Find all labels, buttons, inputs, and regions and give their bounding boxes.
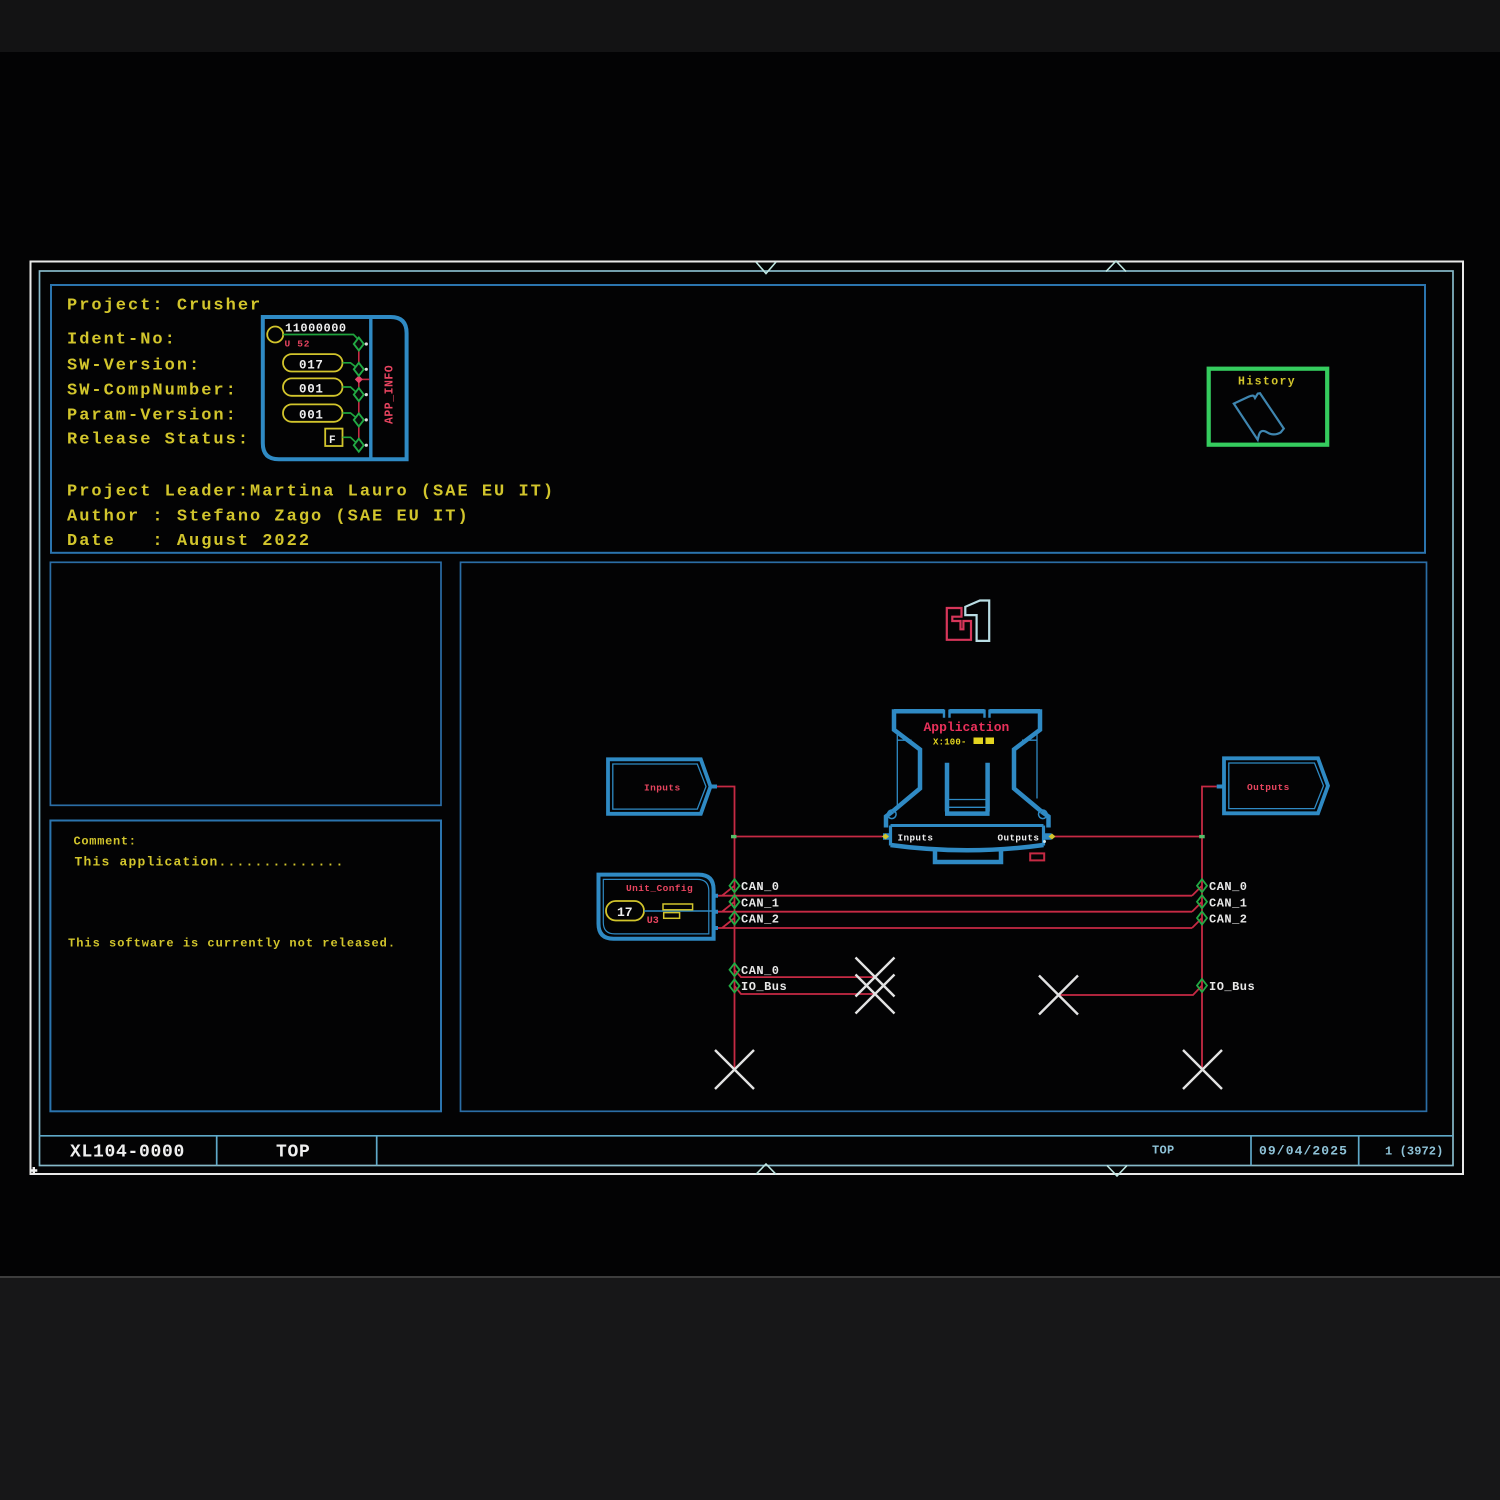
svg-text:001: 001 bbox=[299, 409, 324, 423]
svg-text:IO_Bus: IO_Bus bbox=[741, 980, 787, 994]
svg-text:Outputs: Outputs bbox=[1247, 782, 1290, 793]
svg-text:TOP: TOP bbox=[1152, 1144, 1175, 1158]
svg-text:09/04/2025: 09/04/2025 bbox=[1259, 1144, 1348, 1159]
svg-text:1 (3972): 1 (3972) bbox=[1385, 1145, 1443, 1159]
svg-text:XL104-0000: XL104-0000 bbox=[70, 1143, 185, 1163]
svg-text:11000000: 11000000 bbox=[285, 322, 347, 336]
svg-text:CAN_0: CAN_0 bbox=[741, 880, 780, 894]
svg-text:IO_Bus: IO_Bus bbox=[1209, 980, 1255, 994]
svg-text:This software is currently not: This software is currently not released. bbox=[68, 937, 396, 951]
svg-text:Release Status:: Release Status: bbox=[67, 431, 250, 450]
svg-text:F: F bbox=[329, 435, 336, 447]
svg-text:SW-Version:: SW-Version: bbox=[67, 356, 201, 375]
svg-text:Application: Application bbox=[924, 720, 1010, 735]
svg-text:001: 001 bbox=[299, 383, 324, 397]
svg-text:CAN_1: CAN_1 bbox=[1209, 896, 1248, 910]
svg-text:Author : Stefano Zago (SAE EU: Author : Stefano Zago (SAE EU IT) bbox=[67, 508, 470, 527]
svg-text:U3: U3 bbox=[647, 916, 659, 927]
svg-text:U 52: U 52 bbox=[285, 339, 311, 350]
svg-text:X:100-: X:100- bbox=[933, 738, 967, 748]
svg-text:SW-CompNumber:: SW-CompNumber: bbox=[67, 382, 238, 401]
svg-text:017: 017 bbox=[299, 358, 324, 372]
svg-text:This application..............: This application.............. bbox=[75, 855, 345, 870]
svg-text:APP_INFO: APP_INFO bbox=[384, 365, 397, 424]
svg-text:Project: Crusher: Project: Crusher bbox=[67, 296, 262, 315]
svg-text:Unit_Config: Unit_Config bbox=[626, 883, 693, 894]
svg-text:CAN_2: CAN_2 bbox=[741, 913, 780, 927]
svg-text:Param-Version:: Param-Version: bbox=[67, 407, 238, 426]
svg-text:Inputs: Inputs bbox=[898, 833, 934, 844]
svg-text:CAN_0: CAN_0 bbox=[741, 964, 780, 978]
svg-text:Comment:: Comment: bbox=[74, 835, 137, 849]
svg-text:Date : August 2022: Date : August 2022 bbox=[67, 532, 311, 551]
svg-text:Inputs: Inputs bbox=[644, 783, 681, 794]
svg-text:Project Leader:Martina Lauro (: Project Leader:Martina Lauro (SAE EU IT) bbox=[67, 483, 555, 502]
svg-text:CAN_2: CAN_2 bbox=[1209, 913, 1248, 927]
svg-text:17: 17 bbox=[617, 905, 633, 920]
svg-text:TOP: TOP bbox=[276, 1143, 311, 1163]
svg-text:CAN_0: CAN_0 bbox=[1209, 880, 1248, 894]
svg-text:Outputs: Outputs bbox=[998, 833, 1040, 844]
svg-text:History: History bbox=[1238, 376, 1296, 389]
svg-text:CAN_1: CAN_1 bbox=[741, 896, 780, 910]
svg-text:Ident-No:: Ident-No: bbox=[67, 330, 177, 349]
